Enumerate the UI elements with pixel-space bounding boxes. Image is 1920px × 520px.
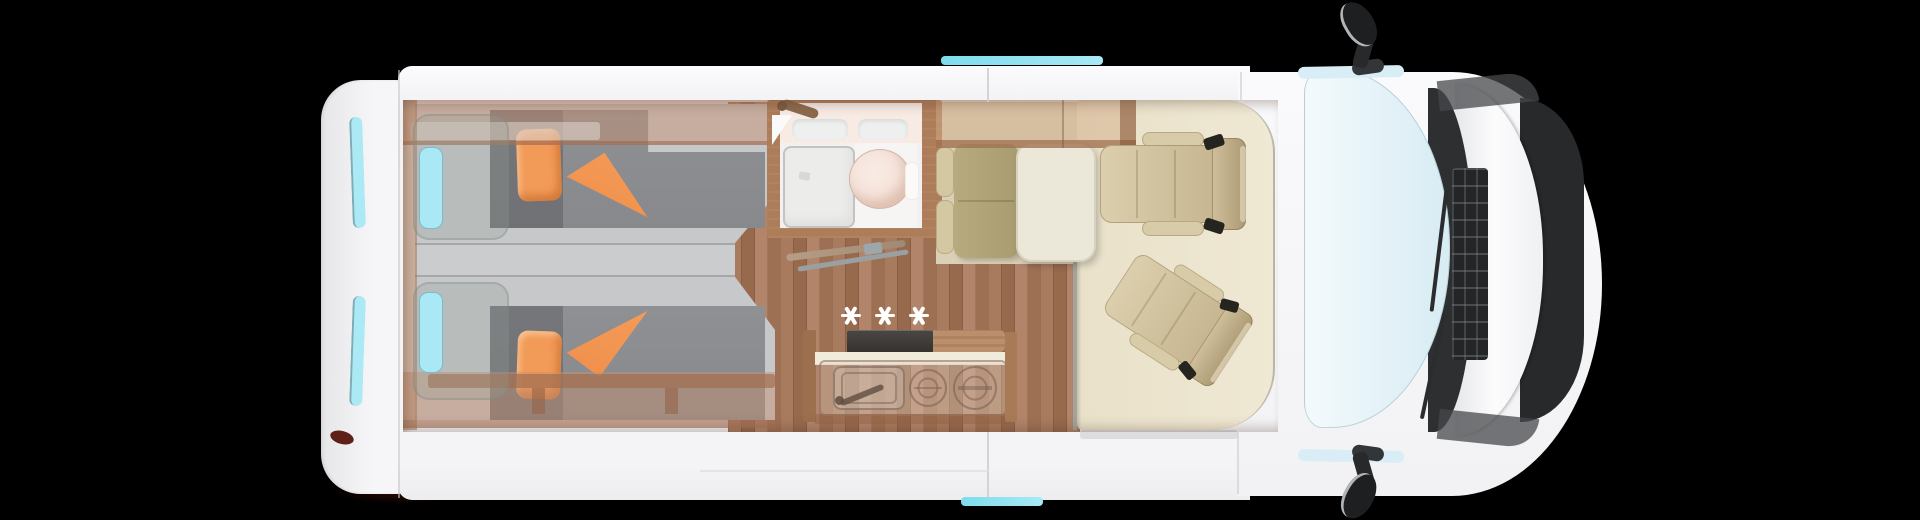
sliding-door-window-top (941, 56, 1103, 65)
body-seam-rear (398, 70, 400, 498)
bed-center-aisle (415, 243, 735, 277)
kitchen-worktop-extension (933, 330, 1005, 352)
kitchen-sink (833, 366, 905, 410)
rear-door-window-bottom (419, 292, 443, 373)
toilet-bowl (849, 149, 911, 209)
shelf-leg (665, 388, 678, 414)
bench-backrest-cushion (936, 200, 954, 254)
camper-van-floorplan (0, 0, 1920, 520)
asterisk-icon (840, 304, 862, 326)
hob-burner-large (953, 366, 997, 410)
sliding-door-window-bottom (961, 497, 1043, 506)
kitchen-counter (819, 360, 1007, 416)
shelf-leg (532, 388, 545, 414)
kitchen-side-panel-left (803, 330, 816, 422)
asterisk-icon (874, 304, 896, 326)
seat-armrest (1142, 221, 1204, 236)
shower-tray (783, 146, 855, 228)
hob-burner-small (909, 369, 947, 407)
cab-seat-rear-facing (1100, 132, 1252, 236)
washbasin-left (792, 119, 848, 140)
asterisk-bar (909, 314, 929, 318)
bench-backrest-cushion (936, 147, 954, 197)
asterisk-bar (875, 314, 895, 318)
sliding-door-rail (700, 470, 988, 472)
rear-door-panel-bottom (413, 282, 509, 400)
body-seam-cab (1237, 430, 1239, 494)
sliding-door-step (1080, 430, 1238, 439)
shelf-seam (1062, 100, 1064, 148)
side-mirror-top (1334, 0, 1384, 52)
asterisk-bar (841, 314, 861, 318)
rear-door-window-top (419, 147, 443, 229)
kitchen-faucet-knob (835, 396, 844, 405)
seat-cushion (1100, 145, 1218, 223)
dinette-bench (954, 144, 1018, 258)
toilet-lid-hinge (905, 162, 919, 200)
hob-marker (840, 300, 936, 330)
cowl-vent-grille (1452, 168, 1488, 360)
rear-door-panel-top (413, 114, 509, 240)
body-seam (987, 432, 989, 498)
seat-headrest (1240, 146, 1246, 222)
bathroom-faucet-knob (777, 101, 787, 111)
bathroom (767, 100, 942, 238)
cabinet-edge (403, 420, 775, 428)
asterisk-icon (908, 304, 930, 326)
washbasin-right (858, 119, 908, 140)
body-seam (987, 68, 989, 102)
kitchen-side-panel-right (1005, 332, 1017, 422)
body-seam-cab (1240, 72, 1242, 102)
kitchen-cabinet-front (815, 414, 1011, 424)
floor-divider (1073, 262, 1077, 430)
hob-glass-cover (847, 330, 933, 353)
dinette-table (1016, 142, 1096, 262)
shower-drain (798, 171, 810, 181)
